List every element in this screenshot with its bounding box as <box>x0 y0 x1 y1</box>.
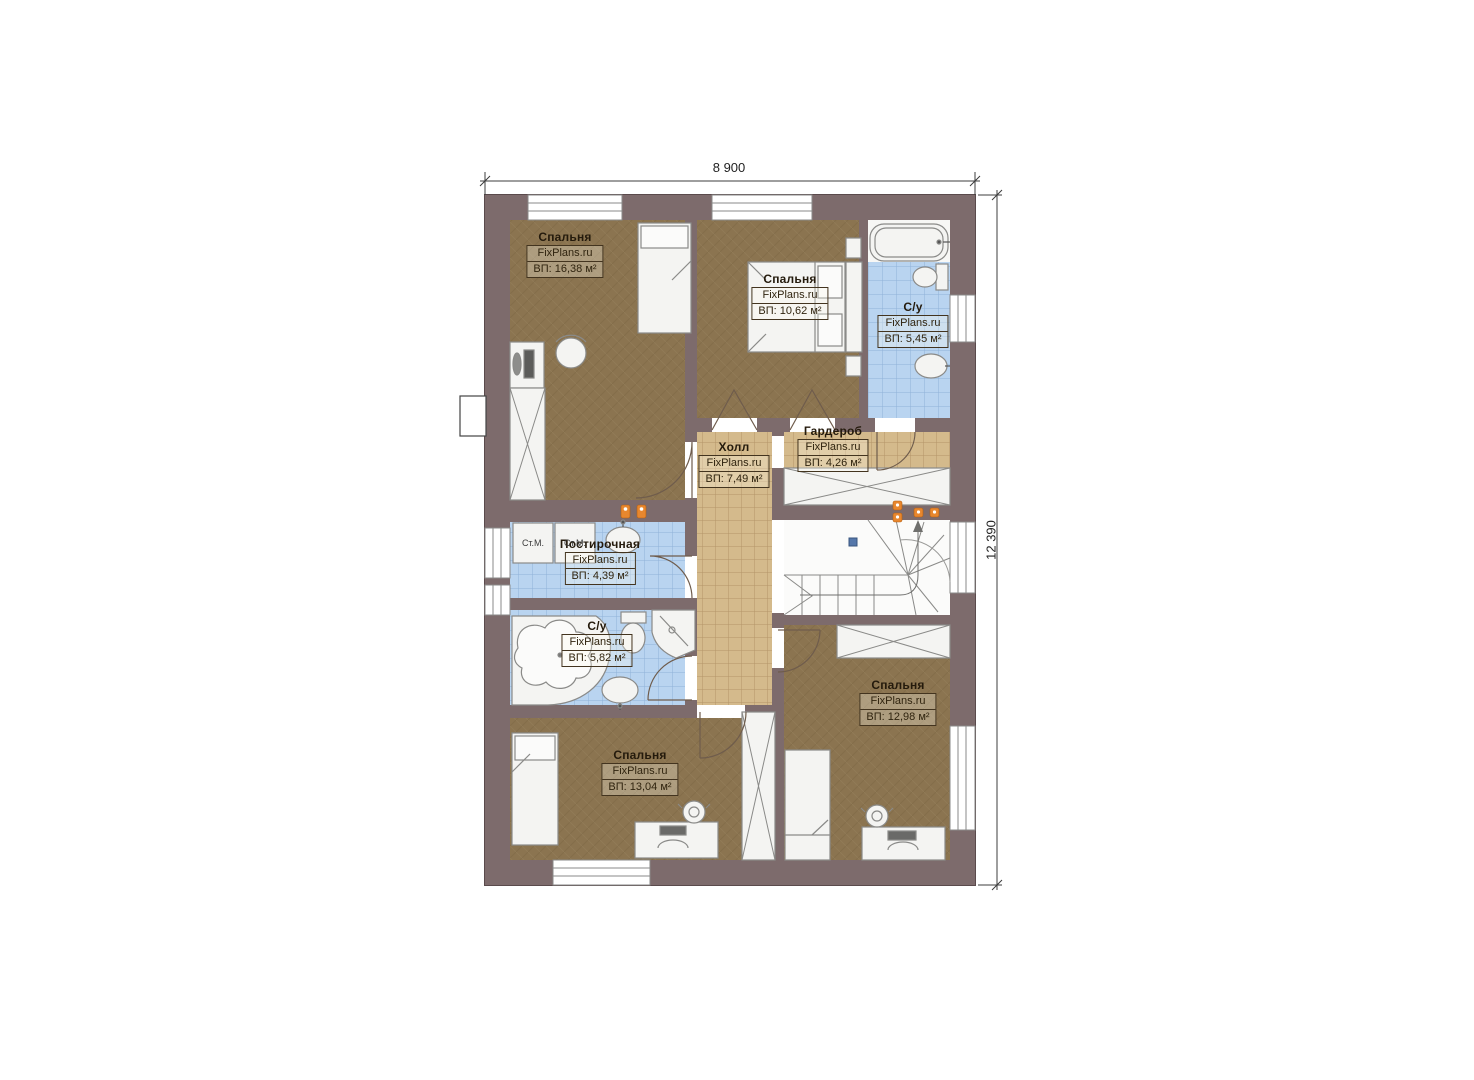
wardrobe-cabinet <box>784 468 950 505</box>
window-left-laundry <box>485 528 510 578</box>
bed-single-bottomleft <box>512 733 558 845</box>
window-right-stairs <box>950 522 975 593</box>
room-label-bedroom-bottomleft: Спальня FixPlans.ru ВП: 13,04 м² <box>601 748 678 796</box>
bed-single-topleft <box>638 223 691 333</box>
room-name: Спальня <box>859 678 936 692</box>
watermark: FixPlans.ru <box>699 456 768 471</box>
window-left-bath <box>485 585 510 615</box>
washer-2-label: Ст.М. <box>564 538 586 548</box>
room-area: ВП: 4,26 м² <box>798 455 867 471</box>
room-info-box: FixPlans.ru ВП: 10,62 м² <box>751 287 828 320</box>
bed-single-bottomright <box>785 750 830 860</box>
window-right-bath <box>950 295 975 342</box>
bathtub <box>870 224 950 261</box>
room-name: С/у <box>561 619 632 633</box>
room-area: ВП: 10,62 м² <box>752 303 827 319</box>
room-name: С/у <box>877 300 948 314</box>
desk-topleft <box>510 342 544 388</box>
window-top-1 <box>528 195 622 220</box>
room-name: Гардероб <box>797 424 868 438</box>
room-label-hall: Холл FixPlans.ru ВП: 7,49 м² <box>698 440 769 488</box>
room-info-box: FixPlans.ru ВП: 5,45 м² <box>877 315 948 348</box>
room-area: ВП: 4,39 м² <box>565 568 634 584</box>
watermark: FixPlans.ru <box>752 288 827 303</box>
wardrobe-bottomright <box>837 625 950 658</box>
room-area: ВП: 5,45 м² <box>878 331 947 347</box>
window-top-2 <box>712 195 812 220</box>
washer-1-label: Ст.М. <box>522 538 544 548</box>
nightstand-top <box>846 238 861 258</box>
dimension-height-label: 12 390 <box>984 520 999 560</box>
room-name: Холл <box>698 440 769 454</box>
watermark: FixPlans.ru <box>562 635 631 650</box>
watermark: FixPlans.ru <box>798 440 867 455</box>
room-label-bathroom-top: С/у FixPlans.ru ВП: 5,45 м² <box>877 300 948 348</box>
watermark: FixPlans.ru <box>878 316 947 331</box>
watermark: FixPlans.ru <box>527 246 602 261</box>
left-wall-stub <box>460 396 486 436</box>
room-area: ВП: 5,82 м² <box>562 650 631 666</box>
watermark: FixPlans.ru <box>565 553 634 568</box>
room-info-box: FixPlans.ru ВП: 5,82 м² <box>561 634 632 667</box>
room-area: ВП: 13,04 м² <box>602 779 677 795</box>
room-area: ВП: 12,98 м² <box>860 709 935 725</box>
room-info-box: FixPlans.ru ВП: 7,49 м² <box>698 455 769 488</box>
room-info-box: FixPlans.ru ВП: 4,26 м² <box>797 439 868 472</box>
nightstand-bottom <box>846 356 861 376</box>
room-name: Спальня <box>526 230 603 244</box>
floor-plan-canvas: Спальня FixPlans.ru ВП: 16,38 м² Спальня… <box>0 0 1474 1080</box>
dimension-width-label: 8 900 <box>713 160 746 175</box>
room-name: Спальня <box>601 748 678 762</box>
wardrobe-bottomleft <box>742 712 775 860</box>
room-label-bedroom-topmiddle: Спальня FixPlans.ru ВП: 10,62 м² <box>751 272 828 320</box>
room-label-bedroom-topleft: Спальня FixPlans.ru ВП: 16,38 м² <box>526 230 603 278</box>
window-right-bedroom <box>950 726 975 830</box>
room-info-box: FixPlans.ru ВП: 16,38 м² <box>526 245 603 278</box>
wardrobe-topleft <box>510 388 545 500</box>
dresser-topmiddle <box>846 262 862 352</box>
room-info-box: FixPlans.ru ВП: 12,98 м² <box>859 693 936 726</box>
room-info-box: FixPlans.ru ВП: 4,39 м² <box>564 552 635 585</box>
window-bottom <box>553 860 650 885</box>
room-area: ВП: 16,38 м² <box>527 261 602 277</box>
room-info-box: FixPlans.ru ВП: 13,04 м² <box>601 763 678 796</box>
room-label-bathroom-bottom: С/у FixPlans.ru ВП: 5,82 м² <box>561 619 632 667</box>
watermark: FixPlans.ru <box>860 694 935 709</box>
room-area: ВП: 7,49 м² <box>699 471 768 487</box>
room-label-wardrobe: Гардероб FixPlans.ru ВП: 4,26 м² <box>797 424 868 472</box>
room-label-bedroom-bottomright: Спальня FixPlans.ru ВП: 12,98 м² <box>859 678 936 726</box>
room-name: Спальня <box>751 272 828 286</box>
watermark: FixPlans.ru <box>602 764 677 779</box>
